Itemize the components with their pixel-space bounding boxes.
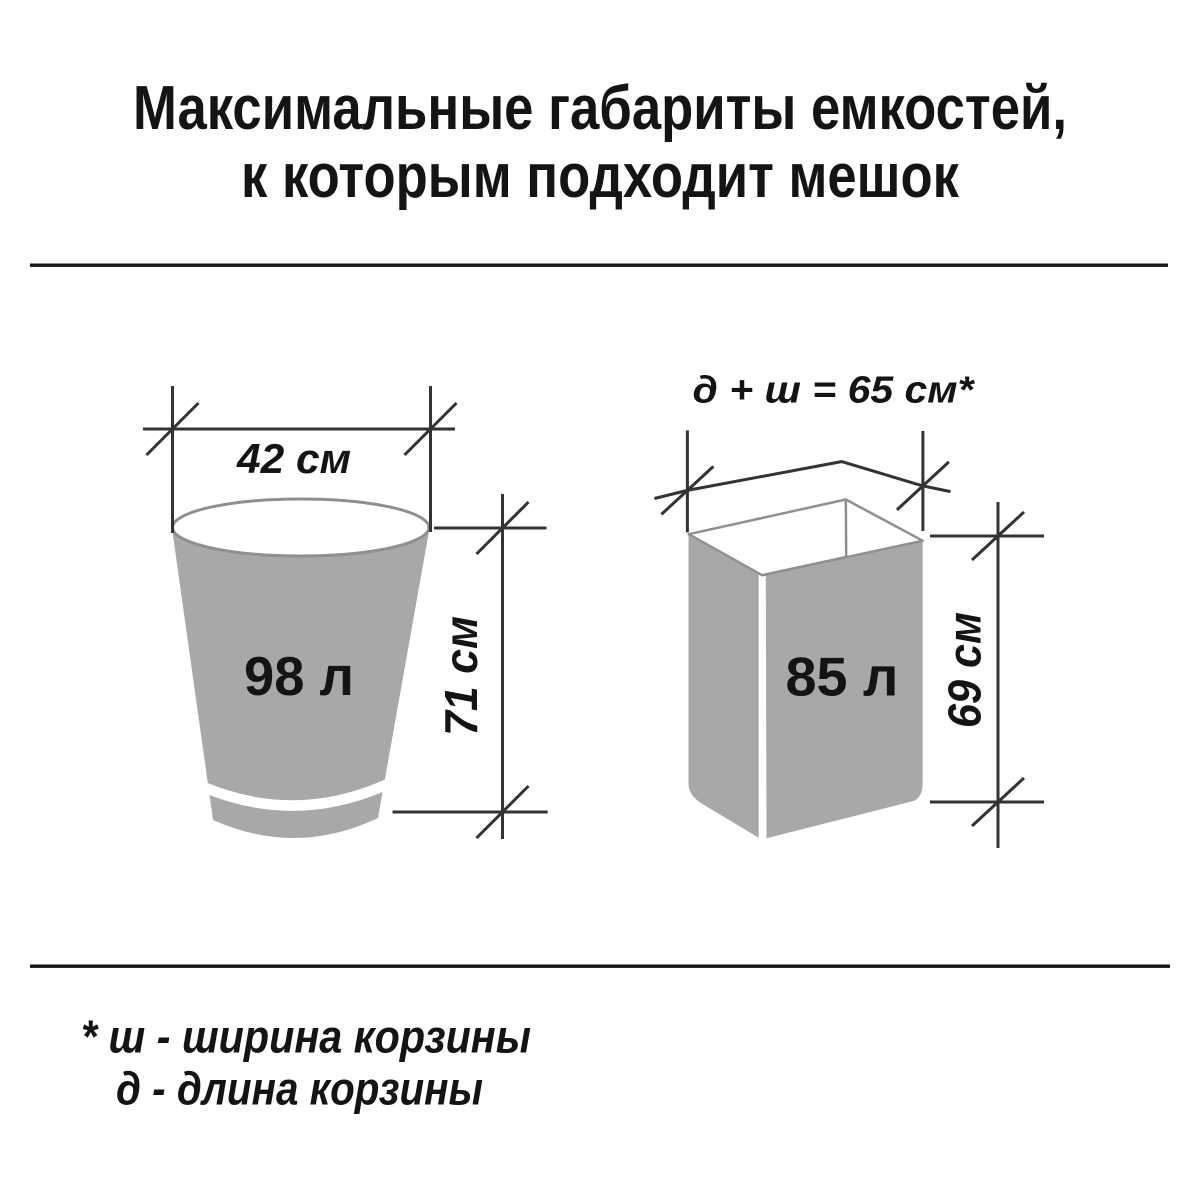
svg-text:71 см: 71 см [435, 616, 487, 736]
svg-text:42 см: 42 см [236, 435, 351, 482]
svg-text:Максимальные габариты емкостей: Максимальные габариты емкостей, [133, 74, 1067, 143]
svg-text:д - длина корзины: д - длина корзины [116, 1063, 483, 1115]
svg-text:98 л: 98 л [244, 645, 354, 707]
svg-text:85 л: 85 л [786, 646, 899, 708]
svg-text:к которым подходит мешок: к которым подходит мешок [241, 142, 960, 211]
svg-text:д + ш = 65 см*: д + ш = 65 см* [693, 370, 976, 412]
svg-text:* ш - ширина корзины: * ш - ширина корзины [81, 1011, 531, 1063]
svg-text:69 см: 69 см [939, 612, 991, 728]
